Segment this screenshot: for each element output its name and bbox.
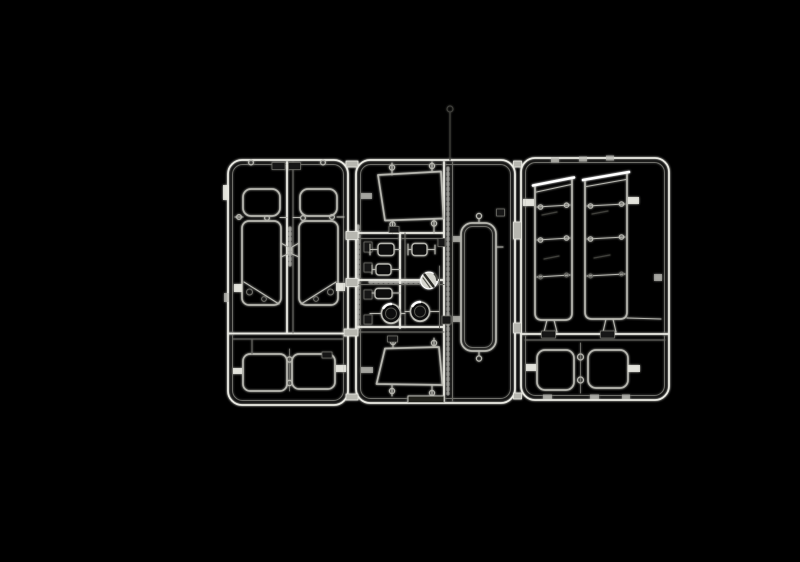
right-rail-tab <box>654 274 662 281</box>
sprue-photo-canvas: Photograph of a clear transparent plasti… <box>40 16 800 546</box>
part-number-tag <box>601 331 615 338</box>
outer-edge-tab-low <box>224 293 229 302</box>
part-number-tag <box>442 316 451 324</box>
part-number-tag <box>388 336 398 342</box>
part-number-tag <box>364 263 372 272</box>
part-number-tag <box>542 331 556 338</box>
part-number-tag <box>438 239 445 247</box>
side-gate-tab-right <box>628 197 639 204</box>
part-number-tag <box>497 209 505 216</box>
faceted-round-lens <box>421 272 438 289</box>
side-gate-tab-left <box>523 199 534 206</box>
part-number-tag <box>389 227 399 233</box>
outer-edge-tab <box>223 185 229 200</box>
side-gate-tab-left <box>234 284 242 292</box>
part-number-tag <box>364 315 372 324</box>
sprue-gate-bar <box>408 396 444 403</box>
side-gate-tab-right <box>336 283 345 291</box>
part-number-tag <box>364 242 372 252</box>
part-number-tag <box>364 290 372 299</box>
part-number-tag <box>322 352 332 358</box>
sprue-photo: Photograph of a clear transparent plasti… <box>40 16 800 546</box>
